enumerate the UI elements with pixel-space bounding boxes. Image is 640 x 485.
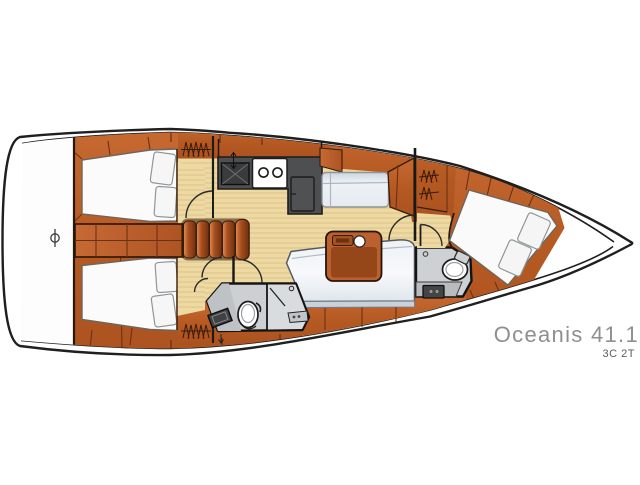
svg-text:Oceanis 41.1: Oceanis 41.1 [494, 322, 639, 347]
svg-text:3C 2T: 3C 2T [603, 348, 635, 360]
